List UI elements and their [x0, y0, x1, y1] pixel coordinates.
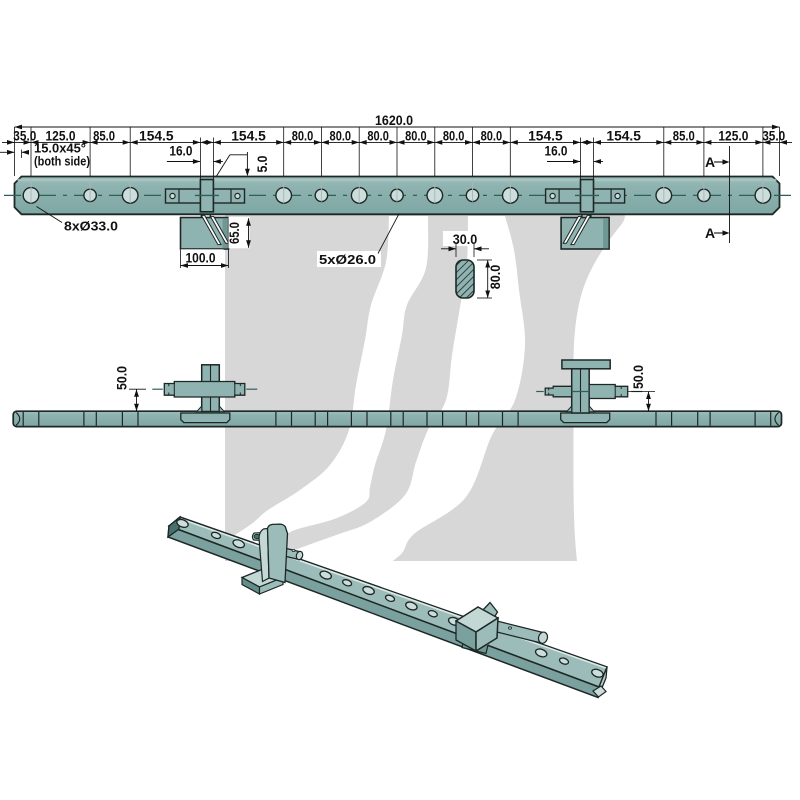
svg-text:5.0: 5.0	[255, 156, 270, 173]
svg-text:30.0: 30.0	[453, 232, 478, 247]
svg-text:125.0: 125.0	[718, 128, 748, 143]
svg-text:16.0: 16.0	[545, 144, 568, 159]
svg-text:1620.0: 1620.0	[375, 113, 413, 128]
svg-text:(both side): (both side)	[34, 154, 90, 169]
svg-text:16.0: 16.0	[169, 144, 192, 159]
svg-text:50.0: 50.0	[115, 366, 130, 390]
svg-text:65.0: 65.0	[227, 222, 242, 244]
svg-text:80.0: 80.0	[292, 128, 314, 143]
svg-text:100.0: 100.0	[186, 250, 216, 265]
svg-text:85.0: 85.0	[673, 128, 695, 143]
svg-text:154.5: 154.5	[139, 128, 174, 143]
svg-text:50.0: 50.0	[631, 365, 646, 389]
svg-text:A: A	[705, 225, 715, 241]
svg-text:35.0: 35.0	[762, 128, 785, 143]
svg-text:80.0: 80.0	[405, 128, 427, 143]
svg-text:80.0: 80.0	[443, 128, 465, 143]
svg-text:8xØ33.0: 8xØ33.0	[64, 219, 118, 234]
svg-text:154.5: 154.5	[528, 128, 563, 143]
svg-text:80.0: 80.0	[481, 128, 503, 143]
svg-text:154.5: 154.5	[231, 128, 266, 143]
svg-text:85.0: 85.0	[93, 128, 115, 143]
svg-text:80.0: 80.0	[367, 128, 389, 143]
svg-text:154.5: 154.5	[606, 128, 641, 143]
svg-text:80.0: 80.0	[488, 265, 503, 290]
svg-text:35.0: 35.0	[13, 128, 36, 143]
svg-text:80.0: 80.0	[330, 128, 352, 143]
svg-text:A: A	[705, 154, 715, 170]
svg-text:5xØ26.0: 5xØ26.0	[319, 252, 376, 267]
